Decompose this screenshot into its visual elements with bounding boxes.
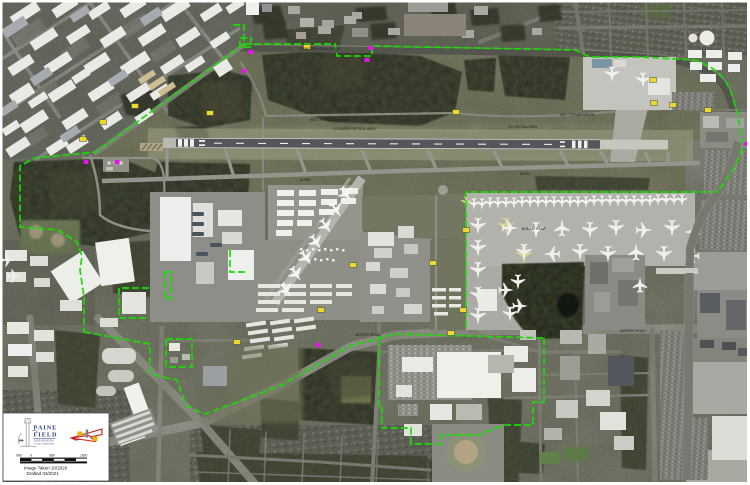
svg-text:ALPHA: ALPHA <box>300 178 311 182</box>
svg-text:Drafted 03/2021: Drafted 03/2021 <box>27 471 60 476</box>
svg-text:PAINE FIELD BOULEVARD: PAINE FIELD BOULEVARD <box>300 47 340 51</box>
svg-text:AIRPORT ROAD: AIRPORT ROAD <box>620 329 646 333</box>
svg-text:ALPHA: ALPHA <box>520 172 531 176</box>
svg-text:LOCALIZER CRITICAL AREA: LOCALIZER CRITICAL AREA <box>333 127 376 131</box>
svg-text:WEST PERIMETER ROAD: WEST PERIMETER ROAD <box>310 118 349 122</box>
svg-text:SNOHOMISH: SNOHOMISH <box>34 439 55 443</box>
svg-text:PAINE: PAINE <box>34 425 58 432</box>
svg-text:WEST PERIMETER RD: WEST PERIMETER RD <box>560 113 595 117</box>
svg-text:0: 0 <box>30 453 32 457</box>
svg-text:GS CRITICAL AREA: GS CRITICAL AREA <box>508 125 538 129</box>
svg-text:COUNTY AIRPORT: COUNTY AIRPORT <box>34 443 56 446</box>
svg-text:800: 800 <box>17 453 23 457</box>
svg-text:1600: 1600 <box>80 453 88 457</box>
svg-text:Image Taken 10/2020: Image Taken 10/2020 <box>24 466 68 471</box>
svg-text:AIRPORT ROAD: AIRPORT ROAD <box>355 333 381 337</box>
svg-text:BOEING RAMP: BOEING RAMP <box>522 227 547 231</box>
svg-text:FIELD: FIELD <box>34 432 58 439</box>
svg-text:800: 800 <box>50 453 56 457</box>
